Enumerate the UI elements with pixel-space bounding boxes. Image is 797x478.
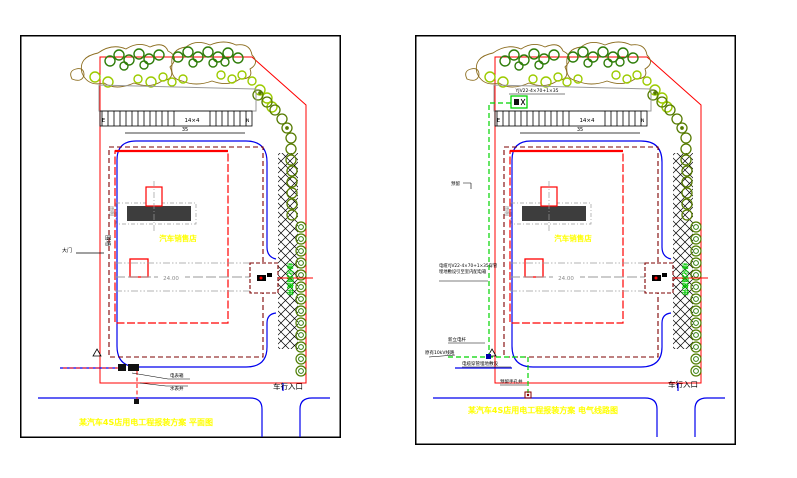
site-plan-right-panel: YJV22-4×70+1×35 预留 电缆YJV22-4×70+1×35穿管 埋… bbox=[415, 35, 736, 445]
building-label: 汽车销售店 bbox=[554, 233, 592, 243]
right-panel-svg: YJV22-4×70+1×35 预留 电缆YJV22-4×70+1×35穿管 埋… bbox=[415, 35, 736, 445]
distribution-box-glyph bbox=[514, 99, 519, 105]
handhole-dot bbox=[527, 394, 529, 396]
cable-note-line1: 电缆YJV22-4×70+1×35穿管 bbox=[439, 262, 498, 269]
pole-label: 新立电杆 bbox=[448, 336, 466, 343]
canopy-label: 雨棚 bbox=[503, 206, 510, 216]
hedge-label: 绿化隔离带 bbox=[681, 263, 690, 296]
drawing-title: 某汽车4S店用电工程报装方案 平面图 bbox=[78, 417, 213, 427]
handhole-label: 预留手孔井 bbox=[500, 378, 523, 385]
parking-right-mark: N bbox=[641, 118, 644, 124]
cable-spec-label: YJV22-4×70+1×35 bbox=[515, 88, 559, 94]
line-label: 原有10kV线路 bbox=[425, 349, 455, 356]
boundary-label: 围墙 bbox=[104, 235, 112, 247]
duct-label: 电缆穿管埋地敷设 bbox=[462, 360, 498, 367]
drawing-title: 某汽车4S店用电工程报装方案 电气线路图 bbox=[467, 405, 618, 415]
parking-count-label: 14×4 bbox=[579, 118, 595, 124]
centerline-value: 24.00 bbox=[163, 276, 179, 282]
cable-junction bbox=[486, 354, 491, 359]
gate-label: 大门 bbox=[62, 247, 72, 254]
parking-left-mark: E bbox=[102, 118, 105, 124]
parking-count-label: 14×4 bbox=[184, 118, 200, 124]
building-label: 汽车销售店 bbox=[159, 233, 197, 243]
parking-right-mark: N bbox=[246, 118, 249, 124]
centerline-value: 24.00 bbox=[558, 276, 574, 282]
vehicle-entrance-label: 车行入口 bbox=[273, 381, 303, 391]
reserve-label: 预留 bbox=[451, 180, 460, 187]
hedge-label: 绿化隔离带 bbox=[286, 263, 295, 296]
site-plan-left-panel: 围墙 大门 雨棚 E 14×4 N 35 汽车销售店 24.00 绿化隔离带 电… bbox=[20, 35, 341, 438]
water-label: 水表井 bbox=[170, 385, 184, 392]
vehicle-entrance-label: 车行入口 bbox=[668, 379, 698, 389]
meter-label: 电表箱 bbox=[170, 372, 184, 379]
cable-note-line2: 埋地敷设引至室内配电箱 bbox=[439, 268, 487, 275]
parking-left-mark: E bbox=[497, 118, 500, 124]
left-panel-svg: 围墙 大门 雨棚 E 14×4 N 35 汽车销售店 24.00 绿化隔离带 电… bbox=[20, 35, 341, 438]
drawing-canvas: 围墙 大门 雨棚 E 14×4 N 35 汽车销售店 24.00 绿化隔离带 电… bbox=[0, 0, 797, 478]
canopy-label: 雨棚 bbox=[108, 206, 115, 216]
dim-label: 35 bbox=[577, 127, 583, 133]
dim-label: 35 bbox=[182, 127, 188, 133]
